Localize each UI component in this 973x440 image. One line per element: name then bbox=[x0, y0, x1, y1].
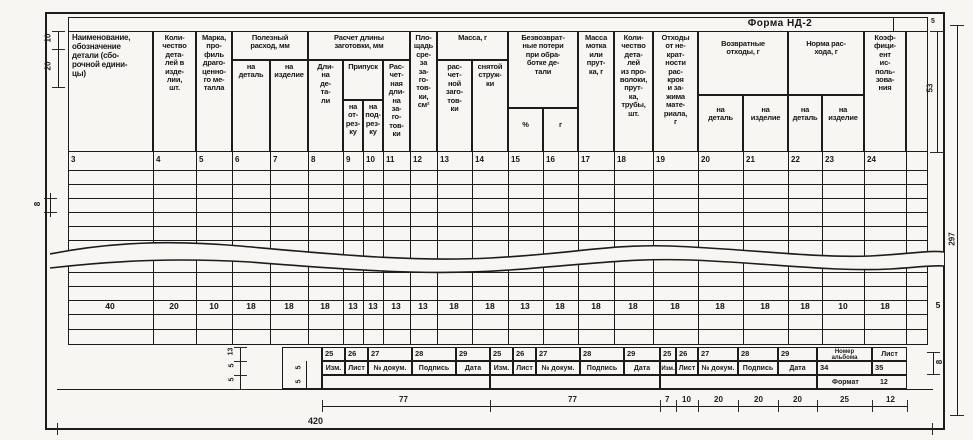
footer-col-number: 29 bbox=[456, 347, 490, 361]
dim-420: 420 bbox=[308, 417, 323, 426]
footer-col-number: 25 bbox=[490, 347, 513, 361]
footer-col-number: 29 bbox=[624, 347, 660, 361]
col-number: 4 bbox=[156, 156, 160, 164]
dim-53: 53 bbox=[926, 84, 934, 93]
dim-tick bbox=[817, 400, 818, 412]
dim-8-row: 8 bbox=[34, 202, 42, 206]
dim-footer-5: 5 bbox=[228, 364, 235, 368]
dim-10: 10 bbox=[44, 34, 52, 43]
footer-format-cell: Формат 12 bbox=[817, 375, 907, 389]
width-value: 40 bbox=[100, 301, 120, 311]
dim-tick bbox=[927, 352, 940, 353]
width-value: 13 bbox=[363, 301, 383, 311]
col-number: 5 bbox=[199, 156, 203, 164]
dim-8-footer: 8 bbox=[936, 360, 944, 364]
footer-label-data: Дата bbox=[624, 361, 660, 375]
header-cell-part-length: Дли- на де- та- ли bbox=[308, 60, 343, 152]
col-number: 18 bbox=[617, 156, 626, 164]
grid-line-h bbox=[68, 184, 928, 185]
header-cell-name: Наименование, обозначение детали (сбо- р… bbox=[68, 31, 153, 152]
col-number: 11 bbox=[386, 156, 394, 164]
footer-label-list: Лист bbox=[676, 361, 698, 375]
grid-line-h bbox=[68, 198, 928, 199]
width-value: 18 bbox=[665, 301, 685, 311]
col-number: 19 bbox=[656, 156, 665, 164]
header-cell-norm-per-product: на изделие bbox=[822, 95, 864, 152]
col-number: 17 bbox=[581, 156, 590, 164]
dim-20: 20 bbox=[44, 62, 52, 71]
width-value: 13 bbox=[515, 301, 535, 311]
footer-label-podpis: Подпись bbox=[412, 361, 456, 375]
width-value: 18 bbox=[795, 301, 815, 311]
dim-tick bbox=[234, 361, 247, 362]
dim-tick bbox=[930, 152, 944, 153]
col-number: 3 bbox=[71, 156, 75, 164]
dim-12: 12 bbox=[884, 396, 897, 404]
width-value: 18 bbox=[279, 301, 299, 311]
footer-label-docnum: № докум. bbox=[698, 361, 738, 375]
dim-line-total bbox=[57, 429, 933, 430]
grid-line-h bbox=[68, 286, 928, 287]
sheet-bottom-line bbox=[57, 389, 933, 390]
width-value: 18 bbox=[875, 301, 895, 311]
dim-tick bbox=[927, 374, 940, 375]
footer-label-podpis: Подпись bbox=[738, 361, 778, 375]
col-number: 23 bbox=[825, 156, 834, 164]
footer-col-number: 28 bbox=[738, 347, 778, 361]
footer-label-data: Дата bbox=[778, 361, 817, 375]
grid-line-h bbox=[68, 329, 928, 330]
dim-7: 7 bbox=[664, 396, 670, 404]
width-value: 18 bbox=[755, 301, 775, 311]
footer-label-list: Лист bbox=[513, 361, 536, 375]
footer-col-number: 25 bbox=[322, 347, 345, 361]
header-group-mass: Масса, г bbox=[437, 31, 508, 60]
col-number: 12 bbox=[413, 156, 422, 164]
width-value: 18 bbox=[623, 301, 643, 311]
dim-77: 77 bbox=[565, 396, 580, 404]
dim-tick bbox=[44, 212, 57, 213]
footer-label-list: Лист bbox=[345, 361, 368, 375]
dim-tick bbox=[676, 400, 677, 412]
dim-line bbox=[933, 352, 934, 374]
footer-label-docnum: № докум. bbox=[368, 361, 412, 375]
header-group-return-waste: Возвратные отходы, г bbox=[698, 31, 788, 95]
header-cell-loss-grams: г bbox=[543, 108, 578, 152]
dim-tick bbox=[490, 400, 491, 412]
footer-album-number-header: Номер альбома bbox=[817, 347, 872, 361]
header-cell-per-product: на изделие bbox=[270, 60, 308, 152]
header-cell-loss-percent: % bbox=[508, 108, 543, 152]
header-cell-norm-per-part: на деталь bbox=[788, 95, 822, 152]
col-number: 24 bbox=[867, 156, 876, 164]
col-number: 10 bbox=[366, 156, 375, 164]
col-number: 20 bbox=[701, 156, 710, 164]
dim-tick bbox=[872, 400, 873, 412]
col-number: 16 bbox=[546, 156, 555, 164]
dim-tick bbox=[907, 400, 908, 412]
footer-col-number: 27 bbox=[368, 347, 412, 361]
footer-empty-row bbox=[490, 375, 660, 389]
width-value: 18 bbox=[480, 301, 500, 311]
header-cell-qty: Коли- чество дета- лей в изде- лии, шт. bbox=[153, 31, 196, 152]
width-value: 13 bbox=[386, 301, 406, 311]
col-number: 8 bbox=[311, 156, 315, 164]
dim-footer-13: 13 bbox=[227, 348, 234, 356]
footer-label-podpis: Подпись bbox=[580, 361, 624, 375]
footer-album-number-value: 34 bbox=[817, 361, 872, 375]
footer-col-number: 25 bbox=[660, 347, 676, 361]
width-value: 18 bbox=[550, 301, 570, 311]
footer-col-number: 28 bbox=[412, 347, 456, 361]
dim-line bbox=[306, 361, 307, 389]
dim-line bbox=[937, 31, 938, 152]
dim-line bbox=[957, 25, 958, 415]
width-value: 13 bbox=[413, 301, 433, 311]
dim-tick bbox=[322, 400, 323, 412]
width-value: 10 bbox=[204, 301, 224, 311]
dim-25: 25 bbox=[838, 396, 851, 404]
dim-footer-5: 5 bbox=[228, 378, 235, 382]
header-cell-cut-area: Пло- щадь сре- за за- го- тов- ки, см² bbox=[410, 31, 437, 152]
width-value: 18 bbox=[710, 301, 730, 311]
header-cell-usage-coeff: Коэф- фици- ент ис- поль- зова- ния bbox=[864, 31, 906, 152]
col-number: 22 bbox=[791, 156, 800, 164]
footer-empty-row bbox=[322, 375, 490, 389]
footer-empty-row bbox=[660, 375, 817, 389]
width-value: 13 bbox=[343, 301, 363, 311]
header-group-length-calc: Расчет длины заготовки, мм bbox=[308, 31, 410, 60]
footer-label-izm: Изм. bbox=[660, 361, 676, 375]
dim-tick bbox=[234, 375, 247, 376]
dim-tick bbox=[660, 400, 661, 412]
dim-line bbox=[50, 193, 51, 217]
header-cell-calc-length: Рас- чет- ная дли- на за- го- тов- ки bbox=[383, 60, 410, 152]
footer-label-data: Дата bbox=[456, 361, 490, 375]
form-title-end-cell bbox=[893, 17, 928, 32]
header-group-norm: Норма рас- хода, г bbox=[788, 31, 864, 95]
width-value: 18 bbox=[444, 301, 464, 311]
dim-20: 20 bbox=[752, 396, 765, 404]
dim-10: 10 bbox=[681, 396, 692, 404]
dim-tick bbox=[950, 25, 964, 26]
dim-line bbox=[240, 347, 241, 389]
dim-tick bbox=[52, 49, 65, 50]
grid-line-h bbox=[68, 226, 928, 227]
dim-5-top: 5 bbox=[931, 18, 935, 25]
footer-format-value: 12 bbox=[880, 379, 888, 386]
width-value: 18 bbox=[586, 301, 606, 311]
footer-col-number: 29 bbox=[778, 347, 817, 361]
footer-col-number: 26 bbox=[676, 347, 698, 361]
header-group-useful: Полезный расход, мм bbox=[232, 31, 308, 60]
header-cell-return-per-product: на изделие bbox=[743, 95, 788, 152]
dim-tick bbox=[234, 347, 247, 348]
dim-line bbox=[322, 406, 907, 407]
dim-tick bbox=[44, 198, 57, 199]
header-cell-facing: на под- рез- ку bbox=[363, 100, 383, 152]
width-value: 5 bbox=[928, 300, 948, 310]
dim-footer2-5: 5 bbox=[295, 380, 302, 384]
header-group-allowance: Припуск bbox=[343, 60, 383, 100]
col-number: 21 bbox=[746, 156, 755, 164]
dim-tick bbox=[738, 400, 739, 412]
header-cell-chips-mass: снятой струж- ки bbox=[472, 60, 508, 152]
header-cell-per-part: на деталь bbox=[232, 60, 270, 152]
width-value: 20 bbox=[164, 301, 184, 311]
footer-label-docnum: № докум. bbox=[536, 361, 580, 375]
dim-tick bbox=[57, 423, 58, 435]
footer-label-izm: Изм. bbox=[490, 361, 513, 375]
dim-tick bbox=[52, 31, 65, 32]
header-group-losses: Безвозврат- ные потери при обра- ботке д… bbox=[508, 31, 578, 108]
col-number: 9 bbox=[346, 156, 350, 164]
dim-tick bbox=[778, 400, 779, 412]
footer-sheet-value: 35 bbox=[872, 361, 907, 375]
footer-col-number: 27 bbox=[536, 347, 580, 361]
header-cell-cutoff: на от- рез- ку bbox=[343, 100, 363, 152]
dim-tick bbox=[698, 400, 699, 412]
dim-tick bbox=[950, 415, 964, 416]
header-cell-return-per-part: на деталь bbox=[698, 95, 743, 152]
dim-footer2-5: 5 bbox=[295, 366, 302, 370]
dim-tick bbox=[932, 423, 933, 435]
grid-line-h bbox=[68, 314, 928, 315]
scanned-form-sheet: Форма НД-2 Наименование, обозначение дет… bbox=[0, 0, 973, 440]
dim-20: 20 bbox=[712, 396, 725, 404]
footer-col-number: 26 bbox=[345, 347, 368, 361]
footer-col-number: 27 bbox=[698, 347, 738, 361]
col-number: 7 bbox=[273, 156, 277, 164]
dim-tick bbox=[234, 389, 247, 390]
dim-line bbox=[58, 31, 59, 87]
col-number: 6 bbox=[235, 156, 239, 164]
col-number: 14 bbox=[475, 156, 484, 164]
width-value: 18 bbox=[241, 301, 261, 311]
footer-col-number: 28 bbox=[580, 347, 624, 361]
header-cell-noncrat-waste: Отходы от не- крат- ности рас- кроя и за… bbox=[653, 31, 698, 152]
header-cell-parts-from-wire: Коли- чество дета- лей из про- волоки, п… bbox=[614, 31, 653, 152]
dim-tick bbox=[930, 31, 944, 32]
footer-sheet-header: Лист bbox=[872, 347, 907, 361]
width-value: 10 bbox=[833, 301, 853, 311]
col-number: 15 bbox=[511, 156, 520, 164]
grid-line-h bbox=[68, 212, 928, 213]
dim-297: 297 bbox=[949, 232, 957, 245]
dim-77: 77 bbox=[396, 396, 411, 404]
header-cell-blank-mass: рас- чет- ной заго- тов- ки bbox=[437, 60, 472, 152]
header-cell-mark: Марка, про- филь драго- ценно- го ме- та… bbox=[196, 31, 232, 152]
col-number: 13 bbox=[440, 156, 449, 164]
break-wave bbox=[50, 232, 944, 278]
grid-line-h bbox=[68, 170, 928, 171]
dim-20: 20 bbox=[791, 396, 804, 404]
footer-label-izm: Изм. bbox=[322, 361, 345, 375]
width-value: 18 bbox=[315, 301, 335, 311]
footer-format-label: Формат bbox=[832, 379, 859, 386]
header-cell-coil-mass: Масса мотка или прут- ка, г bbox=[578, 31, 614, 152]
dim-tick bbox=[52, 87, 65, 88]
footer-col-number: 26 bbox=[513, 347, 536, 361]
form-title: Форма НД-2 bbox=[700, 19, 860, 29]
